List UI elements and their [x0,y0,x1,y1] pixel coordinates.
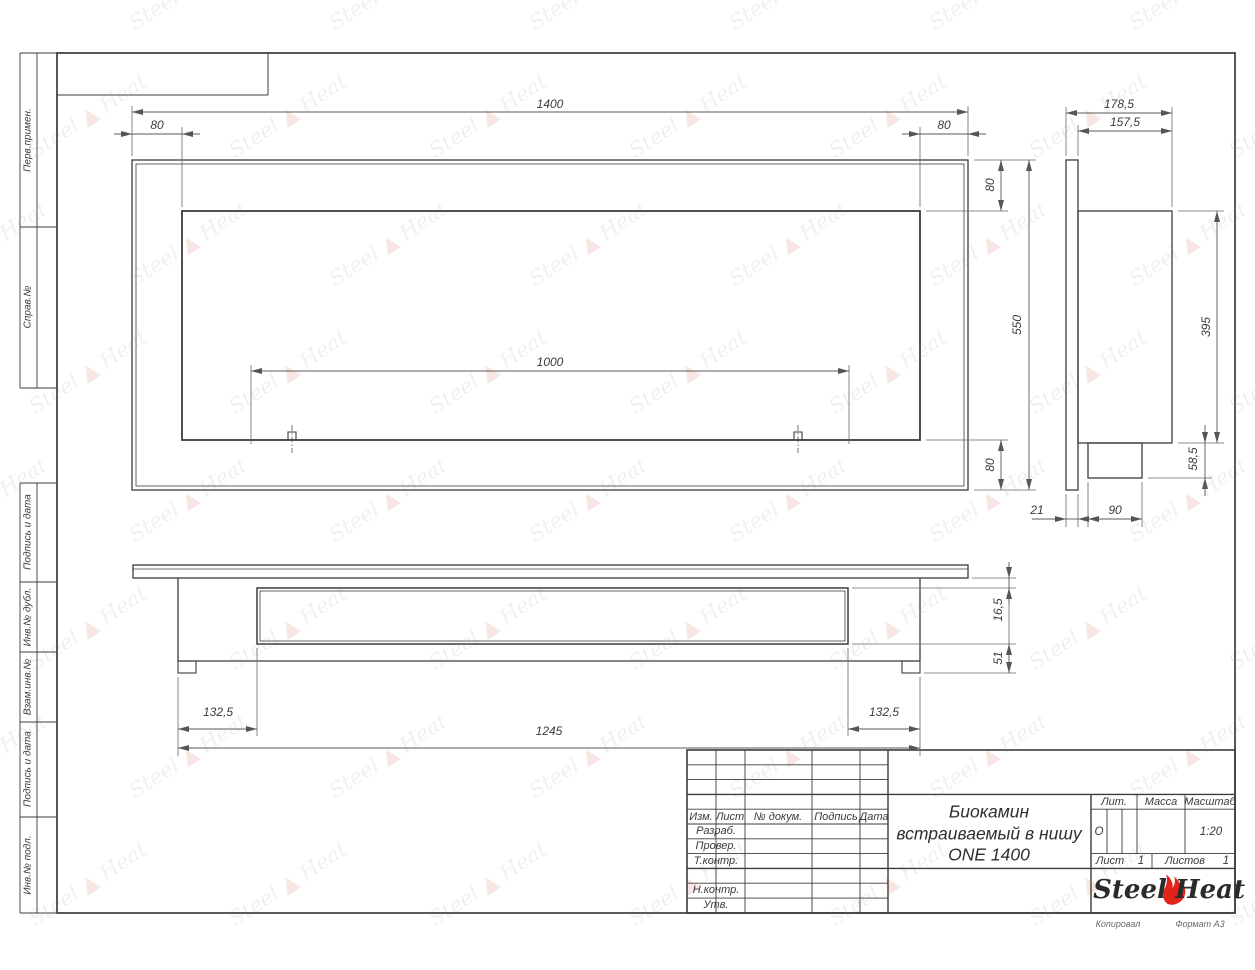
dim-side-body-height: 395 [1199,317,1213,337]
dim-side-tray-depth: 90 [1108,503,1121,517]
dim-side-depth-total: 178,5 [1104,97,1134,111]
tb-col-data: Дата [859,811,888,823]
margin-label-vzam-inv: Взам.инв.№ [23,659,34,715]
doc-title-line-1: Биокамин [949,802,1029,823]
tb-row-tkontr: Т.контр. [694,855,738,867]
dim-side-depth-body: 157,5 [1110,115,1140,129]
kopiroval-note: Копировал [1096,919,1141,929]
tb-col-list: Лист [716,811,744,823]
front-view [132,160,968,490]
dim-bottom-right-inset: 132,5 [869,705,899,719]
small-dimension-lines [114,134,1205,604]
tb-col-podpis: Подпись [814,811,858,823]
doc-title-line-3: ONE 1400 [948,845,1030,866]
dim-front-bottom-inset: 80 [983,458,997,471]
margin-label-perv-primen: Перв.примен. [23,108,34,172]
dim-side-tray-height: 58,5 [1186,447,1200,470]
dimension-lines [132,112,1217,748]
tb-row-utv: Утв. [704,899,729,911]
margin-label-inv-dubl: Инв.№ дубл. [23,588,34,647]
tb-row-nkontr: Н.контр. [693,884,740,896]
tb-col-izm: Изм. [689,811,712,823]
bottom-view [133,565,968,673]
margin-label-podpis-data-1: Подпись и дата [23,494,34,570]
side-view [1066,160,1172,490]
tb-sheet-value: 1 [1138,855,1144,867]
margin-label-sprav-no: Справ.№ [23,286,34,329]
dim-front-height: 550 [1010,315,1024,335]
tb-sheet-label: Лист [1096,855,1124,867]
tb-sheets-value: 1 [1223,855,1229,867]
tb-scale-label: Масштаб [1184,796,1235,808]
margin-label-podpis-data-2: Подпись и дата [23,731,34,807]
sheet-frame [20,53,1235,913]
format-note: Формат А3 [1175,919,1224,929]
tb-scale-value: 1:20 [1200,826,1222,838]
tb-col-docnum: № докум. [754,811,802,823]
extension-lines [132,106,1224,756]
tb-sheets-label: Листов [1165,855,1205,867]
dim-bottom-left-inset: 132,5 [203,705,233,719]
dim-bottom-back-inset: 51 [991,651,1005,664]
dim-side-flange-depth: 21 [1030,503,1043,517]
dim-front-width: 1400 [537,97,564,111]
dim-front-top-inset: 80 [983,178,997,191]
tb-mass-label: Масса [1145,796,1178,808]
doc-title-line-2: встраиваемый в нишу [896,824,1081,845]
dim-bottom-front-inset: 16,5 [991,598,1005,621]
dim-front-left-inset: 80 [150,118,163,132]
tb-lit-label: Лит. [1101,796,1127,808]
drawing-sheet: Steel ▲ HeatSteel ▲ HeatSteel ▲ HeatStee… [0,0,1255,970]
margin-label-inv-podl: Инв.№ подл. [23,835,34,894]
brand-heat-text: Heat [1175,875,1245,905]
dim-bottom-body-width: 1245 [536,724,563,738]
dim-front-right-inset: 80 [937,118,950,132]
brand-steel-text: Steel [1093,875,1167,905]
dim-front-opening: 1000 [537,355,564,369]
tb-row-razrab: Разраб. [696,825,736,837]
tb-lit-value: О [1095,826,1104,838]
tb-row-prover: Провер. [696,840,737,852]
